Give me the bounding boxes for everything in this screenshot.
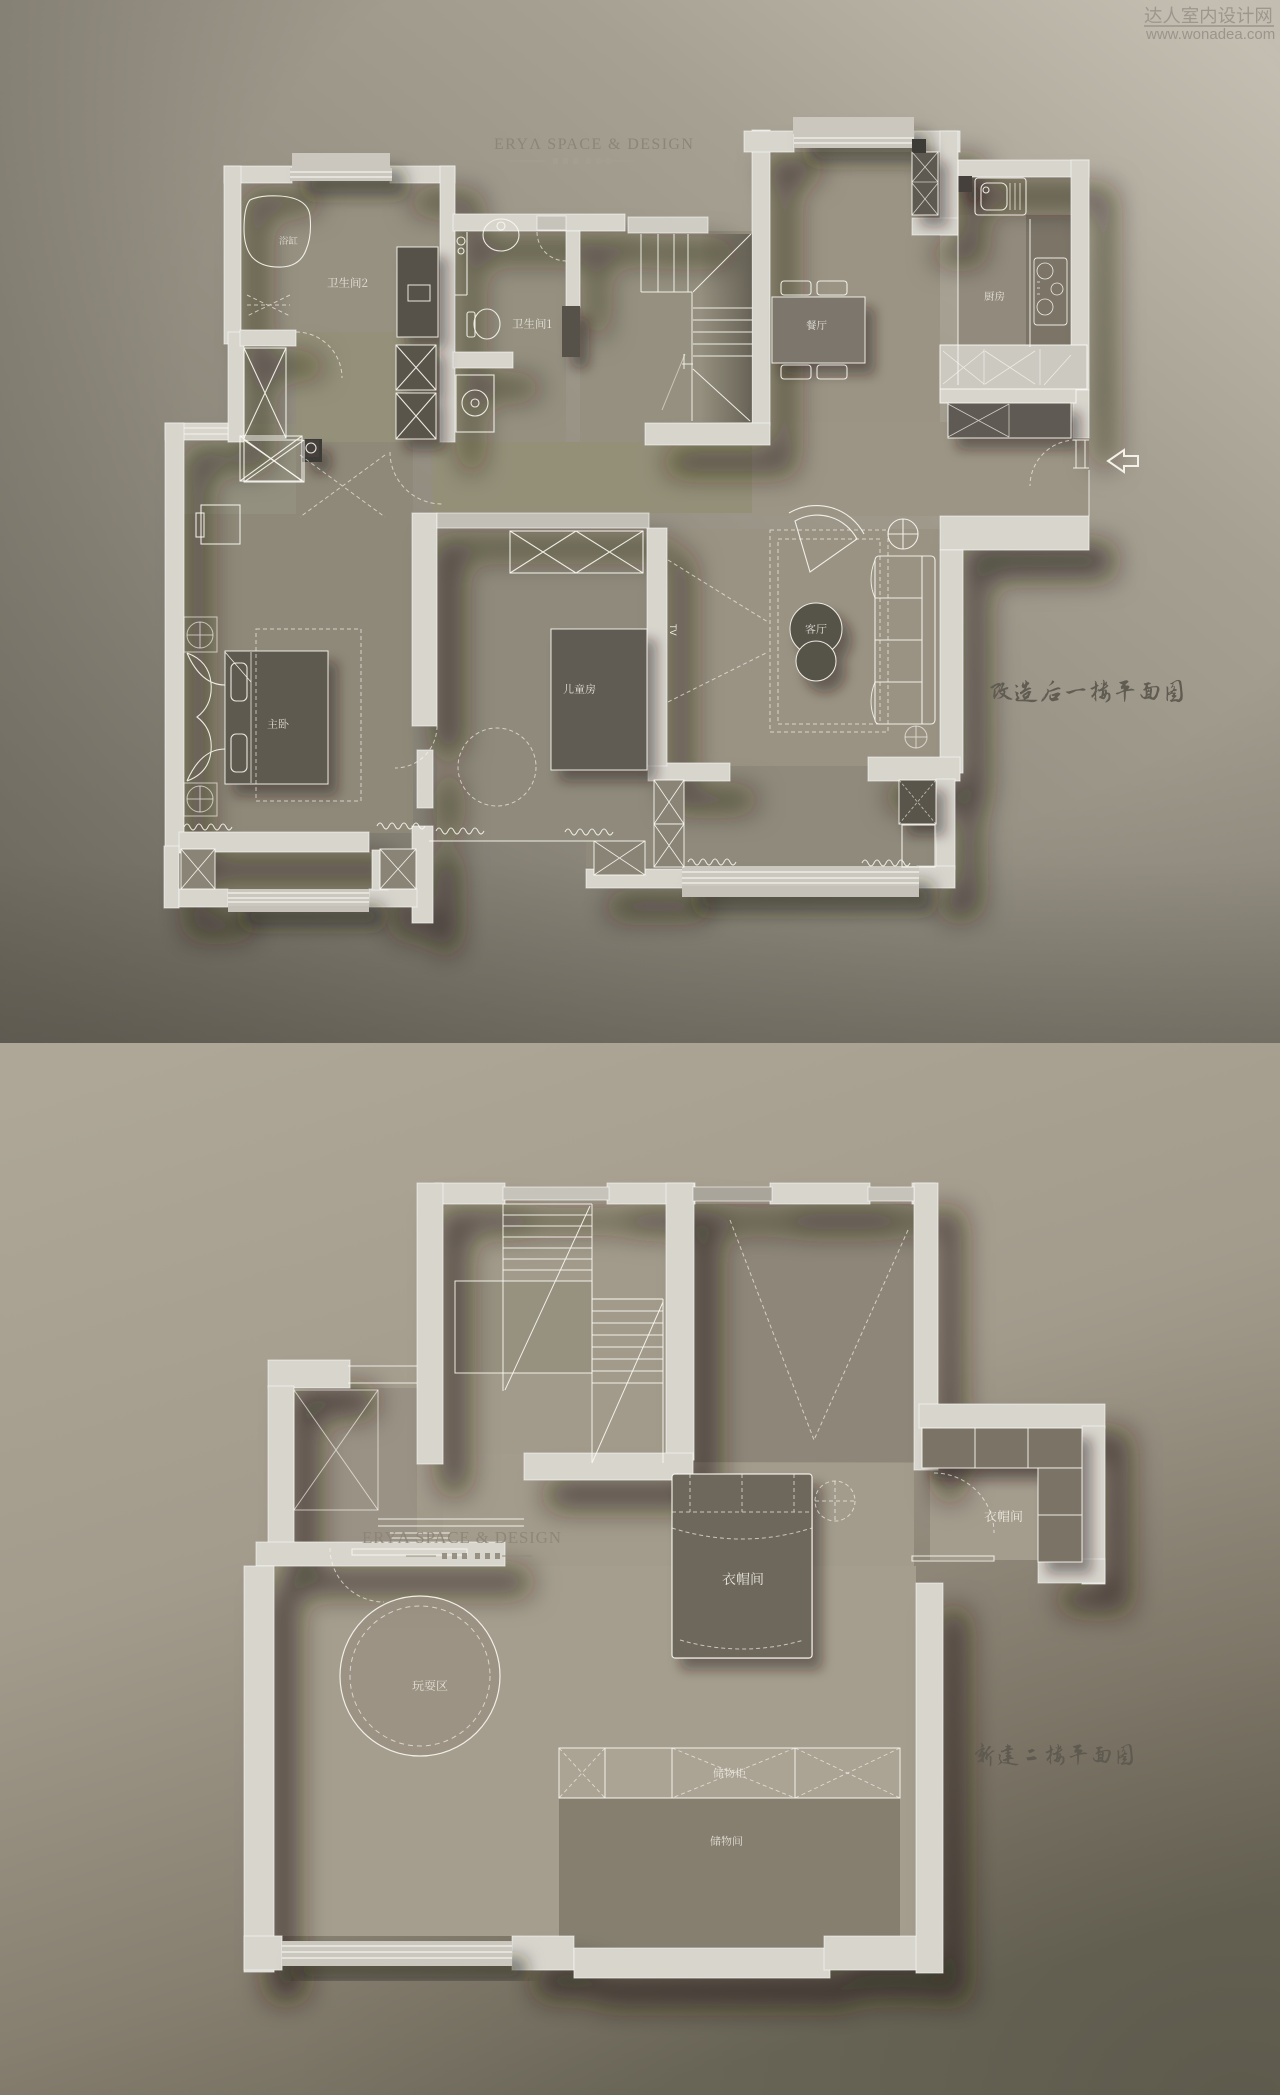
svg-text:www.wonadea.com: www.wonadea.com (1145, 26, 1275, 43)
svg-text:ERYΛ SPACE & DESIGN: ERYΛ SPACE & DESIGN (494, 136, 694, 153)
svg-text:TV: TV (668, 624, 678, 636)
svg-text:ERYΛ SPACE & DESIGN: ERYΛ SPACE & DESIGN (362, 1528, 562, 1547)
